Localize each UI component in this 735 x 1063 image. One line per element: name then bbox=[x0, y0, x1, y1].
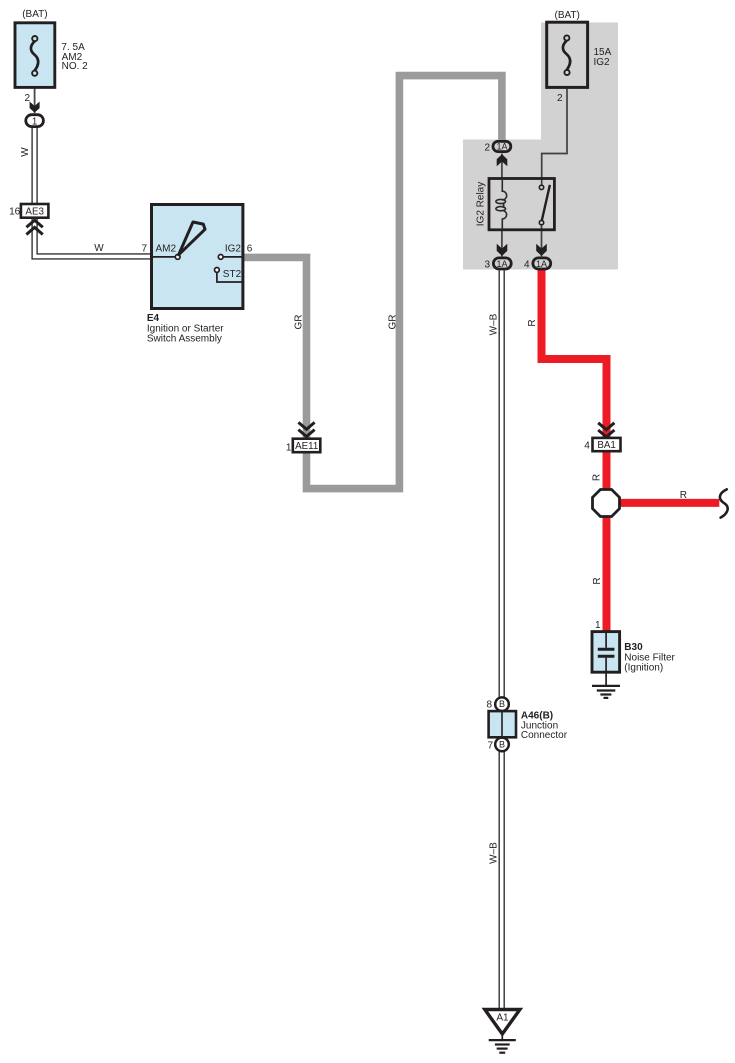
svg-text:AM2: AM2 bbox=[156, 243, 177, 254]
svg-text:1A: 1A bbox=[496, 142, 507, 152]
svg-text:6: 6 bbox=[247, 243, 253, 254]
svg-text:1: 1 bbox=[595, 620, 601, 631]
svg-text:7: 7 bbox=[141, 244, 147, 255]
svg-text:W: W bbox=[94, 243, 104, 254]
svg-text:W–B: W–B bbox=[489, 842, 500, 864]
svg-text:4: 4 bbox=[584, 441, 590, 452]
svg-text:Switch Assembly: Switch Assembly bbox=[147, 333, 222, 344]
svg-text:R: R bbox=[592, 577, 603, 584]
svg-text:B30: B30 bbox=[624, 642, 643, 653]
svg-text:1: 1 bbox=[286, 442, 292, 453]
svg-text:1: 1 bbox=[32, 116, 37, 127]
svg-text:B: B bbox=[499, 739, 505, 749]
svg-text:(BAT): (BAT) bbox=[22, 9, 47, 20]
svg-text:8: 8 bbox=[486, 700, 492, 711]
svg-text:W: W bbox=[20, 147, 31, 157]
svg-text:4: 4 bbox=[524, 259, 530, 270]
svg-text:16: 16 bbox=[9, 206, 21, 217]
svg-text:(Ignition): (Ignition) bbox=[624, 663, 663, 674]
svg-text:BA1: BA1 bbox=[597, 440, 616, 451]
svg-text:GR: GR bbox=[388, 315, 399, 330]
svg-text:B: B bbox=[499, 699, 505, 709]
svg-text:ST2: ST2 bbox=[223, 269, 242, 280]
svg-text:3: 3 bbox=[484, 259, 490, 270]
svg-text:IG2: IG2 bbox=[594, 57, 611, 68]
svg-text:R: R bbox=[527, 319, 538, 326]
svg-text:R: R bbox=[592, 474, 603, 481]
svg-text:W–B: W–B bbox=[489, 313, 500, 335]
svg-text:IG2 Relay: IG2 Relay bbox=[476, 182, 487, 226]
svg-text:A1: A1 bbox=[496, 1012, 509, 1023]
svg-text:7: 7 bbox=[487, 740, 493, 751]
svg-text:Connector: Connector bbox=[521, 730, 568, 741]
svg-text:2: 2 bbox=[484, 142, 490, 153]
svg-text:IG2: IG2 bbox=[225, 243, 242, 254]
svg-text:AE11: AE11 bbox=[295, 441, 318, 452]
svg-text:GR: GR bbox=[294, 315, 305, 330]
svg-text:NO. 2: NO. 2 bbox=[62, 61, 89, 72]
svg-text:2: 2 bbox=[24, 93, 30, 104]
svg-text:(BAT): (BAT) bbox=[555, 10, 580, 21]
svg-text:R: R bbox=[680, 490, 687, 501]
svg-text:1A: 1A bbox=[536, 259, 547, 269]
svg-text:AE3: AE3 bbox=[25, 207, 44, 218]
svg-text:2: 2 bbox=[557, 93, 563, 104]
svg-text:1A: 1A bbox=[496, 259, 507, 269]
